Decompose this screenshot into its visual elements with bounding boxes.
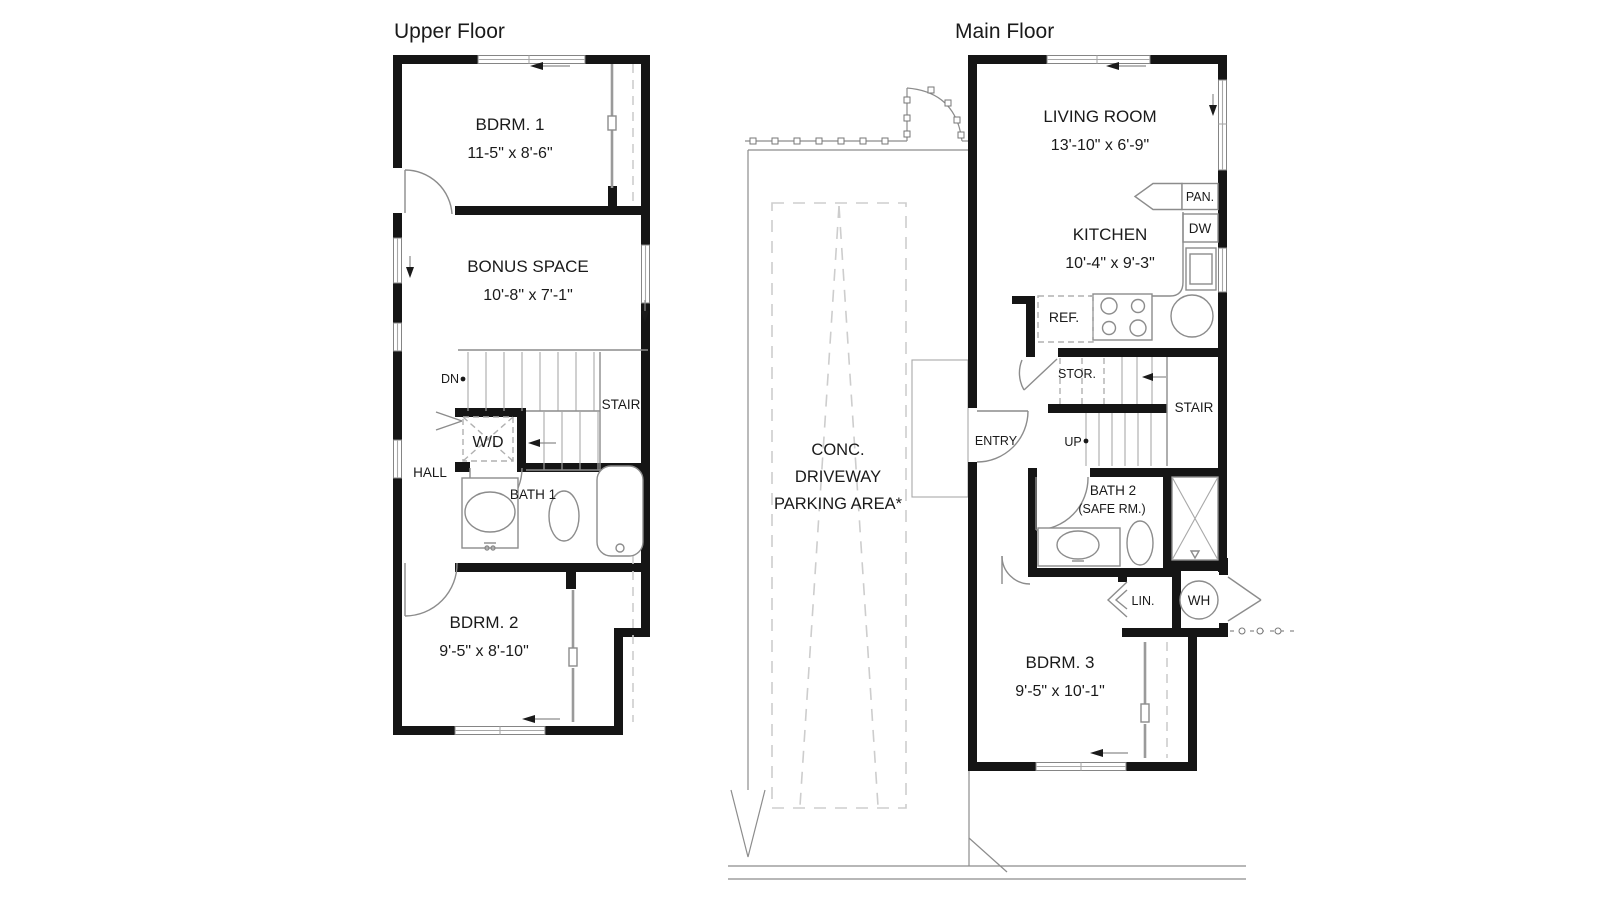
label-up: UP bbox=[1064, 435, 1081, 449]
door-bdrm2 bbox=[405, 563, 457, 616]
window bbox=[455, 727, 545, 735]
driveway-label-line1: CONC. bbox=[811, 441, 864, 459]
room-dims-bdrm3: 9'-5" x 10'-1" bbox=[1015, 683, 1105, 700]
driveway: CONC. DRIVEWAY PARKING AREA* bbox=[731, 150, 968, 857]
door-stor bbox=[1019, 359, 1057, 390]
door-bdrm1 bbox=[405, 170, 452, 214]
room-dims-bdrm2: 9'-5" x 8'-10" bbox=[439, 643, 529, 660]
label-stair-upper: STAIR bbox=[602, 397, 641, 412]
door-bdrm3 bbox=[1002, 556, 1030, 584]
room-dims-bdrm1: 11-5" x 8'-6" bbox=[467, 145, 552, 162]
driveway-label-line3: PARKING AREA* bbox=[774, 495, 903, 513]
upper-floor-hidden-lines bbox=[569, 64, 633, 722]
door-lin-chevron bbox=[1108, 582, 1127, 617]
floor-plan-canvas: Upper Floor bbox=[0, 0, 1600, 905]
label-wh: WH bbox=[1188, 593, 1211, 608]
right-fence bbox=[1230, 628, 1295, 634]
fence-line bbox=[745, 87, 968, 144]
entry-walkway bbox=[912, 360, 968, 497]
floor-plan-page: Upper Floor bbox=[0, 0, 1600, 905]
room-dims-kitchen: 10'-4" x 9'-3" bbox=[1065, 255, 1155, 272]
upper-floor-plan: Upper Floor bbox=[393, 20, 650, 735]
road-lines bbox=[728, 771, 1246, 879]
main-floor-title: Main Floor bbox=[955, 20, 1054, 43]
window bbox=[1219, 248, 1227, 292]
driveway-label-line2: DRIVEWAY bbox=[795, 468, 881, 486]
label-ref: REF. bbox=[1049, 309, 1079, 325]
room-label-bdrm2: BDRM. 2 bbox=[450, 613, 519, 632]
window bbox=[642, 245, 650, 303]
room-label-kitchen: KITCHEN bbox=[1073, 225, 1148, 244]
door-wh bbox=[1228, 577, 1261, 621]
label-dn: DN bbox=[441, 372, 459, 386]
door-pantry bbox=[1135, 184, 1182, 210]
shower bbox=[1172, 477, 1218, 560]
window bbox=[394, 238, 402, 283]
room-sub-bath2: (SAFE RM.) bbox=[1078, 502, 1145, 516]
room-label-living: LIVING ROOM bbox=[1043, 107, 1156, 126]
room-dims-bonus: 10'-8" x 7'-1" bbox=[483, 287, 573, 304]
window bbox=[394, 323, 402, 351]
label-bath1: BATH 1 bbox=[510, 487, 556, 502]
toilet bbox=[1127, 521, 1153, 565]
label-entry: ENTRY bbox=[975, 434, 1018, 448]
window bbox=[1036, 763, 1126, 771]
bath2-vanity bbox=[1038, 528, 1120, 566]
room-label-bdrm3: BDRM. 3 bbox=[1026, 653, 1095, 672]
window bbox=[478, 56, 585, 64]
main-floor-hidden-lines bbox=[1141, 642, 1167, 758]
room-dims-living: 13'-10" x 6'-9" bbox=[1051, 137, 1149, 154]
window bbox=[1047, 56, 1150, 64]
corner-cabinet bbox=[1171, 295, 1213, 337]
kitchen-sink bbox=[1186, 248, 1216, 290]
room-label-bonus: BONUS SPACE bbox=[467, 257, 589, 276]
upper-floor-title: Upper Floor bbox=[394, 20, 505, 43]
room-label-bath2: BATH 2 bbox=[1090, 483, 1136, 498]
label-wd: W/D bbox=[472, 434, 503, 451]
label-pan: PAN. bbox=[1186, 190, 1214, 204]
main-floor-plan: Main Floor bbox=[955, 20, 1295, 771]
label-lin: LIN. bbox=[1132, 594, 1155, 608]
label-stair-main: STAIR bbox=[1175, 400, 1214, 415]
stove bbox=[1093, 294, 1152, 340]
label-stor: STOR. bbox=[1058, 367, 1096, 381]
window bbox=[394, 440, 402, 478]
bathtub bbox=[597, 466, 643, 556]
label-hall: HALL bbox=[413, 465, 447, 480]
label-dw: DW bbox=[1189, 221, 1212, 236]
room-label-bdrm1: BDRM. 1 bbox=[476, 115, 545, 134]
window bbox=[1219, 80, 1227, 170]
